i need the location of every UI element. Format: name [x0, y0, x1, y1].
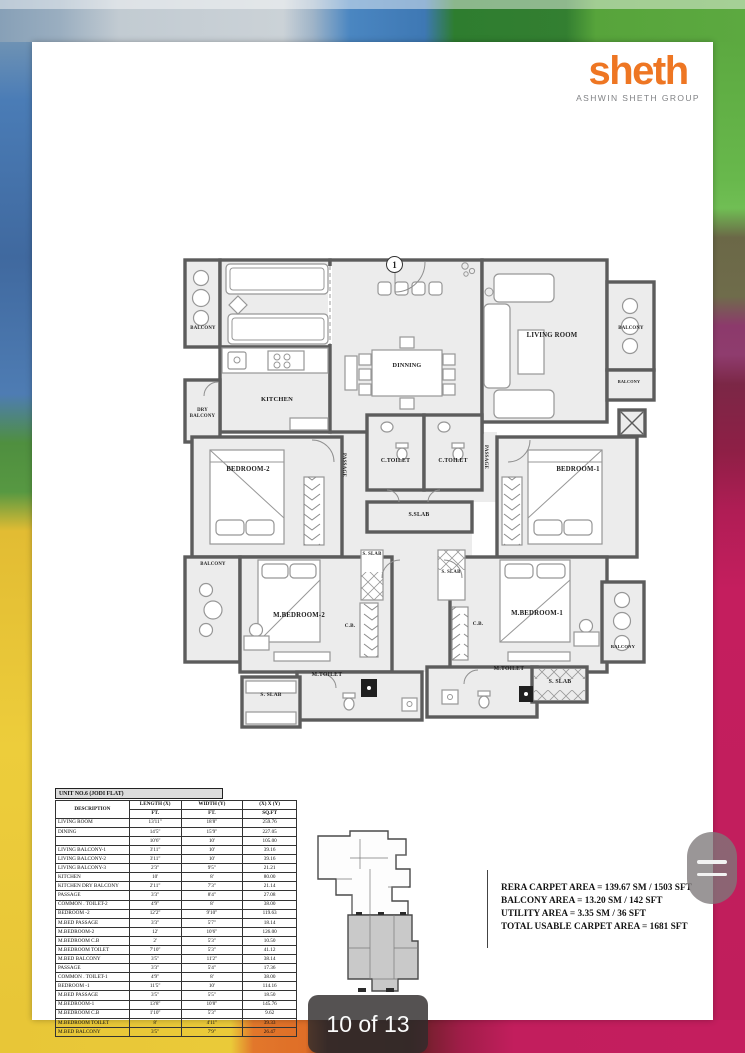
floor-plan-drawing — [182, 252, 660, 730]
room-label-balcony-top-left: BALCONY — [186, 326, 220, 332]
room-label-s-slab-center: S.SLAB — [388, 512, 450, 519]
cell-description: LIVING ROOM — [56, 818, 130, 827]
cell-value: 80.00 — [243, 873, 297, 882]
cell-value: 259.76 — [243, 818, 297, 827]
cell-description: PASSAGE — [56, 964, 130, 973]
room-label-c-toilet-left: C.TOILET — [368, 458, 423, 465]
room-label-living-room: LIVING ROOM — [510, 332, 594, 340]
cell-value: 8' — [181, 873, 243, 882]
side-drag-handle[interactable] — [687, 832, 737, 904]
cell-value: 18'8" — [181, 818, 243, 827]
cell-description: M.BED PASSAGE — [56, 991, 130, 1000]
table-row: M.BED BALCONY3'5"7'9"26.47 — [56, 1027, 297, 1036]
cell-value: 39.16 — [243, 845, 297, 854]
table-row: PASSAGE3'3"5'4"17.36 — [56, 964, 297, 973]
cell-value: 10' — [129, 873, 181, 882]
cell-description: COMMON . TOILET-2 — [56, 900, 130, 909]
cell-value: 7'10" — [129, 946, 181, 955]
cell-value: 8' — [129, 1018, 181, 1027]
table-row: KITCHEN10'8'80.00 — [56, 873, 297, 882]
key-plan — [300, 828, 440, 1018]
cell-value: 11'2" — [181, 955, 243, 964]
table-row: 10'6"10'105.00 — [56, 836, 297, 845]
cell-description: M.BED PASSAGE — [56, 918, 130, 927]
unit-number-marker: 1 — [386, 256, 403, 273]
cell-description: M.BEDROOM C.B — [56, 936, 130, 945]
table-row: M.BEDROOM-212'10'6"126.00 — [56, 927, 297, 936]
room-label-s-slab-mid-right: S. SLAB — [436, 570, 466, 576]
cell-description: M.BEDROOM TOILET — [56, 946, 130, 955]
room-label-balcony-bottom-right: BALCONY — [600, 644, 646, 649]
cell-value: 12'2" — [129, 909, 181, 918]
cell-value: 105.00 — [243, 836, 297, 845]
room-label-s-slab-bottom-left: S. SLAB — [256, 692, 286, 698]
cell-description: BEDROOM -1 — [56, 982, 130, 991]
room-label-passage-left: PASSAGE — [340, 434, 346, 496]
cell-value: 17.36 — [243, 964, 297, 973]
cell-value: 12' — [129, 927, 181, 936]
cell-value: 21.21 — [243, 864, 297, 873]
cell-value: 27.08 — [243, 891, 297, 900]
cell-value: 4'9" — [129, 900, 181, 909]
cell-value: 7'9" — [181, 1027, 243, 1036]
cell-description: M.BED BALCONY — [56, 1027, 130, 1036]
table-row: COMMON . TOILET-14'9"8'38.00 — [56, 973, 297, 982]
table-row: COMMON . TOILET-24'9"8'38.00 — [56, 900, 297, 909]
cell-value: 9'5" — [181, 864, 243, 873]
room-label-m-toilet-left: M.TOILET — [298, 672, 356, 679]
table-row: LIVING BALCONY-13'11"10'39.16 — [56, 845, 297, 854]
cell-value: 3'11" — [129, 855, 181, 864]
brochure-page: sheth ASHWIN SHETH GROUP — [32, 42, 713, 1020]
room-label-dry-balcony: DRY BALCONY — [185, 408, 220, 419]
cell-value: 2'3" — [129, 864, 181, 873]
room-label-s-slab-bottom-right: S. SLAB — [534, 679, 586, 686]
cell-description: LIVING BALCONY-1 — [56, 845, 130, 854]
cell-description: BEDROOM -2 — [56, 909, 130, 918]
col-header-length: LENGTH (X) — [129, 800, 181, 809]
table-row: M.BEDROOM TOILET8'4'11"39.33 — [56, 1018, 297, 1027]
cell-value: 10'8" — [181, 1000, 243, 1009]
table-row: LIVING BALCONY-23'11"10'39.16 — [56, 855, 297, 864]
cell-value: 3'3" — [129, 964, 181, 973]
cell-value: 10' — [181, 845, 243, 854]
cell-value: 145.76 — [243, 1000, 297, 1009]
cell-value: 39.33 — [243, 1018, 297, 1027]
table-row: M.BEDROOM-113'8"10'8"145.76 — [56, 1000, 297, 1009]
cell-value: 10'6" — [129, 836, 181, 845]
col-header-area-unit: SQ.FT — [243, 809, 297, 818]
cell-value: 9'10" — [181, 909, 243, 918]
cell-description: LIVING BALCONY-3 — [56, 864, 130, 873]
cell-description: M.BEDROOM C.B — [56, 1009, 130, 1018]
col-header-width: WIDTH (Y) — [181, 800, 243, 809]
cell-value: 5'3" — [181, 936, 243, 945]
cell-value: 8' — [181, 973, 243, 982]
cell-value: 3'5" — [129, 991, 181, 1000]
cell-value: 10.50 — [243, 936, 297, 945]
room-label-passage-right: PASSAGE — [482, 428, 488, 486]
cell-description: M.BEDROOM-1 — [56, 1000, 130, 1009]
col-header-length-unit: FT. — [129, 809, 181, 818]
room-label-m-bedroom-1: M.BEDROOM-1 — [484, 610, 590, 618]
handle-bar-icon — [697, 873, 727, 877]
cell-value: 38.00 — [243, 900, 297, 909]
room-label-balcony-right-lower: BALCONY — [606, 380, 652, 385]
room-label-balcony-mid-left: BALCONY — [188, 562, 238, 568]
cell-value: 227.05 — [243, 827, 297, 836]
cell-value: 126.00 — [243, 927, 297, 936]
watercolor-border-top-highlight — [0, 0, 745, 9]
cell-value: 3'5" — [129, 955, 181, 964]
cell-description: LIVING BALCONY-2 — [56, 855, 130, 864]
cell-description: PASSAGE — [56, 891, 130, 900]
cell-value: 1'10" — [129, 1009, 181, 1018]
cell-value: 5'4" — [181, 964, 243, 973]
cell-description: M.BEDROOM TOILET — [56, 1018, 130, 1027]
cell-description: M.BEDROOM-2 — [56, 927, 130, 936]
cell-value: 2' — [129, 936, 181, 945]
area-summary-line: RERA CARPET AREA = 139.67 SM / 1503 SFT — [501, 882, 713, 895]
cell-description: M.BED BALCONY — [56, 955, 130, 964]
cell-value: 39.16 — [243, 855, 297, 864]
table-row: BEDROOM -111'5"10'114.16 — [56, 982, 297, 991]
unit-number: 1 — [392, 260, 397, 270]
screenshot-canvas: sheth ASHWIN SHETH GROUP — [0, 0, 745, 1053]
cell-value: 5'5" — [181, 991, 243, 1000]
cell-value: 4'11" — [181, 1018, 243, 1027]
brand-tagline: ASHWIN SHETH GROUP — [576, 93, 700, 103]
cell-description — [56, 836, 130, 845]
cell-value: 8' — [181, 900, 243, 909]
room-label-balcony-right-upper: BALCONY — [609, 326, 653, 332]
cell-value: 14'5" — [129, 827, 181, 836]
page-indicator-text: 10 of 13 — [326, 1011, 409, 1038]
cell-value: 7'3" — [181, 882, 243, 891]
room-label-bedroom-2: BEDROOM-2 — [204, 466, 292, 474]
room-label-s-slab-mid-left: S. SLAB — [358, 552, 386, 558]
table-row: M.BED PASSAGE3'5"5'5"18.50 — [56, 991, 297, 1000]
room-label-kitchen: KITCHEN — [244, 396, 310, 403]
page-indicator: 10 of 13 — [308, 995, 428, 1053]
cell-value: 10' — [181, 855, 243, 864]
room-label-m-bedroom-2: M.BEDROOM-2 — [246, 612, 352, 620]
room-label-dinning: DINNING — [378, 362, 436, 369]
cell-value: 4'9" — [129, 973, 181, 982]
cell-value: 10' — [181, 982, 243, 991]
area-summary-line: BALCONY AREA = 13.20 SM / 142 SFT — [501, 895, 713, 908]
floor-plan: 1 BALCONY KITCHEN DRY BALCONY DINNING LI… — [182, 252, 660, 730]
table-row: KITCHEN DRY BALCONY2'11"7'3"21.14 — [56, 882, 297, 891]
cell-value: 13'8" — [129, 1000, 181, 1009]
area-summary-line: UTILITY AREA = 3.35 SM / 36 SFT — [501, 908, 713, 921]
col-header-width-unit: FT. — [181, 809, 243, 818]
room-label-m-toilet-right: M.TOILET — [480, 666, 538, 673]
cell-description: DINING — [56, 827, 130, 836]
col-header-description: DESCRIPTION — [56, 800, 130, 818]
cell-value: 5'3" — [181, 946, 243, 955]
table-row: M.BEDROOM TOILET7'10"5'3"41.12 — [56, 946, 297, 955]
cell-value: 21.14 — [243, 882, 297, 891]
cell-value: 38.00 — [243, 973, 297, 982]
cell-value: 8'4" — [181, 891, 243, 900]
cell-value: 3'11" — [129, 845, 181, 854]
dimension-table: UNIT NO.6 (JODI FLAT) DESCRIPTION LENGTH… — [55, 788, 297, 1037]
cell-value: 9.62 — [243, 1009, 297, 1018]
dimension-table-grid: DESCRIPTION LENGTH (X) WIDTH (Y) (X) X (… — [55, 800, 297, 1037]
table-row: LIVING BALCONY-32'3"9'5"21.21 — [56, 864, 297, 873]
cell-description: KITCHEN DRY BALCONY — [56, 882, 130, 891]
handle-bar-icon — [697, 860, 727, 864]
area-summary-line: TOTAL USABLE CARPET AREA = 1681 SFT — [501, 921, 713, 934]
table-row: LIVING ROOM13'11"18'8"259.76 — [56, 818, 297, 827]
table-row: PASSAGE3'3"8'4"27.08 — [56, 891, 297, 900]
cell-value: 10'6" — [181, 927, 243, 936]
col-header-area: (X) X (Y) — [243, 800, 297, 809]
table-row: BEDROOM -212'2"9'10"119.63 — [56, 909, 297, 918]
table-row: M.BEDROOM C.B1'10"5'3"9.62 — [56, 1009, 297, 1018]
key-plan-drawing — [300, 828, 440, 1018]
cell-value: 5'3" — [181, 1009, 243, 1018]
cell-value: 2'11" — [129, 882, 181, 891]
table-row: M.BED BALCONY3'5"11'2"38.14 — [56, 955, 297, 964]
cell-value: 10' — [181, 836, 243, 845]
watercolor-border-left — [0, 42, 32, 1020]
cell-value: 26.47 — [243, 1027, 297, 1036]
room-label-cb-right: C.B. — [466, 622, 490, 628]
cell-value: 3'3" — [129, 918, 181, 927]
room-label-cb-left: C.B. — [338, 624, 362, 630]
cell-value: 119.63 — [243, 909, 297, 918]
cell-value: 38.14 — [243, 955, 297, 964]
cell-value: 18.14 — [243, 918, 297, 927]
cell-description: COMMON . TOILET-1 — [56, 973, 130, 982]
table-row: M.BED PASSAGE3'3"5'7"18.14 — [56, 918, 297, 927]
sheth-logo: sheth — [576, 50, 700, 92]
room-label-c-toilet-right: C.TOILET — [425, 458, 481, 465]
cell-value: 114.16 — [243, 982, 297, 991]
table-row: DINING14'5"15'9"227.05 — [56, 827, 297, 836]
room-label-bedroom-1: BEDROOM-1 — [534, 466, 622, 474]
cell-value: 5'7" — [181, 918, 243, 927]
area-summary: RERA CARPET AREA = 139.67 SM / 1503 SFT … — [487, 870, 713, 948]
cell-description: KITCHEN — [56, 873, 130, 882]
cell-value: 18.50 — [243, 991, 297, 1000]
cell-value: 3'5" — [129, 1027, 181, 1036]
cell-value: 11'5" — [129, 982, 181, 991]
brand-block: sheth ASHWIN SHETH GROUP — [576, 50, 700, 103]
cell-value: 3'3" — [129, 891, 181, 900]
cell-value: 41.12 — [243, 946, 297, 955]
table-row: M.BEDROOM C.B2'5'3"10.50 — [56, 936, 297, 945]
cell-value: 15'9" — [181, 827, 243, 836]
cell-value: 13'11" — [129, 818, 181, 827]
table-title: UNIT NO.6 (JODI FLAT) — [55, 788, 223, 799]
